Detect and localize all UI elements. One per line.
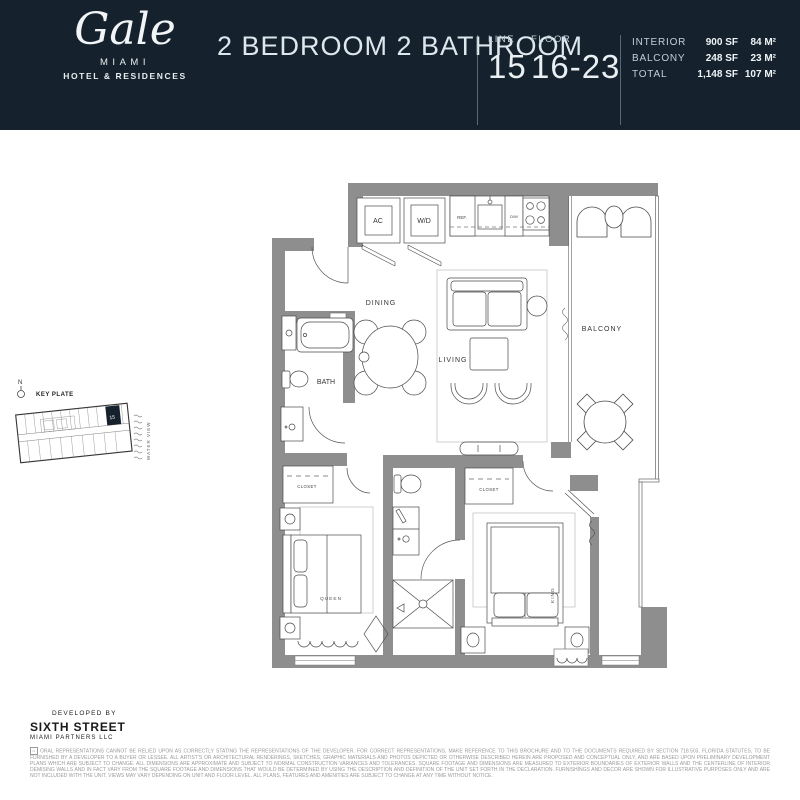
balcony-dining: [577, 394, 633, 450]
stove: [523, 198, 549, 230]
side-table: [527, 296, 547, 316]
closet-label: CLOSET: [479, 487, 499, 492]
drapery-icon: [298, 641, 358, 647]
stat-row-interior: INTERIOR 900 SF 84 M²: [632, 37, 776, 48]
bathroom-2: [393, 475, 453, 628]
stat-m2: 107 M²: [738, 69, 776, 80]
highlighted-unit-label: 15: [109, 415, 115, 422]
developed-by-label: DEVELOPED BY: [52, 710, 126, 717]
logo-city: MIAMI: [60, 57, 190, 68]
stat-sf: 248 SF: [692, 53, 738, 64]
kitchen-sink: [478, 205, 502, 229]
dw-label: D/W: [510, 214, 518, 219]
toilet-1: [282, 371, 308, 388]
queen-bedroom: [280, 466, 373, 647]
logo-subtitle: HOTEL & RESIDENCES: [60, 71, 190, 81]
utility-closets: [357, 198, 445, 266]
stat-label: TOTAL: [632, 69, 692, 80]
bath2-vanity: [393, 507, 419, 555]
ref-label: REF.: [457, 215, 467, 220]
stat-row-balcony: BALCONY 248 SF 23 M²: [632, 53, 776, 64]
key-plate: N KEY PLATE 15 WATER VIEW: [14, 376, 156, 476]
line-value: 15: [488, 48, 527, 86]
balcony-label: BALCONY: [582, 326, 622, 333]
equal-housing-icon: ⌂: [30, 747, 38, 755]
king-closet: [465, 468, 513, 504]
entry-door: [312, 247, 348, 283]
area-stats: INTERIOR 900 SF 84 M² BALCONY 248 SF 23 …: [632, 37, 776, 85]
wd-label: W/D: [417, 218, 431, 225]
legal-disclaimer: ⌂ORAL REPRESENTATIONS CANNOT BE RELIED U…: [30, 747, 770, 779]
dining-label: DINING: [366, 300, 397, 307]
floor-block: FLOOR 16-23: [531, 34, 620, 86]
sofa: [447, 278, 527, 330]
key-plate-label: KEY PLATE: [36, 392, 74, 398]
toilet-2: [394, 475, 421, 493]
north-compass-icon: N: [18, 380, 25, 398]
stat-label: INTERIOR: [632, 37, 692, 48]
logo-script-text: Gale: [60, 4, 190, 56]
floor-label: FLOOR: [531, 34, 620, 45]
console: [460, 442, 518, 455]
header-bar: Gale MIAMI HOTEL & RESIDENCES 2 BEDROOM …: [0, 0, 800, 130]
floor-value: 16-23: [531, 48, 620, 86]
building-footprint: 15: [16, 403, 132, 462]
stat-label: BALCONY: [632, 53, 692, 64]
king-label: KING: [550, 587, 556, 603]
developer-block: DEVELOPED BY SIXTH STREET MIAMI PARTNERS…: [30, 710, 126, 741]
bathroom-1: [281, 313, 353, 443]
water-view-label: WATER VIEW: [146, 422, 151, 461]
lounge-chair: [577, 207, 607, 237]
disclaimer-text: ORAL REPRESENTATIONS CANNOT BE RELIED UP…: [30, 748, 770, 779]
floor-plan: REF. D/W AC W/D BATH: [265, 175, 670, 675]
header-divider-1: [477, 35, 478, 125]
developer-name: SIXTH STREET: [30, 720, 126, 734]
bath1-door: [309, 407, 345, 443]
lounge-chair: [621, 207, 651, 237]
gale-logo: Gale MIAMI HOTEL & RESIDENCES: [60, 4, 190, 81]
queen-label: QUEEN: [320, 596, 342, 602]
bath-label: BATH: [317, 379, 335, 386]
header-divider-2: [620, 35, 621, 125]
page-title: 2 BEDROOM 2 BATHROOM: [217, 31, 583, 62]
coffee-table: [470, 338, 508, 370]
line-block: LINE 15: [488, 34, 527, 86]
king-bed: [487, 523, 563, 626]
curtain-icon: [563, 308, 568, 340]
accent-chairs: [451, 383, 531, 404]
stat-sf: 900 SF: [692, 37, 738, 48]
stat-m2: 23 M²: [738, 53, 776, 64]
balcony-railing: [639, 196, 659, 607]
line-label: LINE: [488, 34, 527, 45]
dining-set: [354, 320, 426, 395]
shower: [393, 580, 453, 628]
closet-label: CLOSET: [297, 484, 317, 489]
stat-m2: 84 M²: [738, 37, 776, 48]
living-label: LIVING: [439, 357, 468, 364]
developer-subname: MIAMI PARTNERS LLC: [30, 735, 126, 741]
stat-row-total: TOTAL 1,148 SF 107 M²: [632, 69, 776, 80]
ac-label: AC: [373, 218, 383, 225]
svg-text:N: N: [18, 380, 22, 386]
water-symbol: [134, 415, 142, 459]
stat-sf: 1,148 SF: [692, 69, 738, 80]
